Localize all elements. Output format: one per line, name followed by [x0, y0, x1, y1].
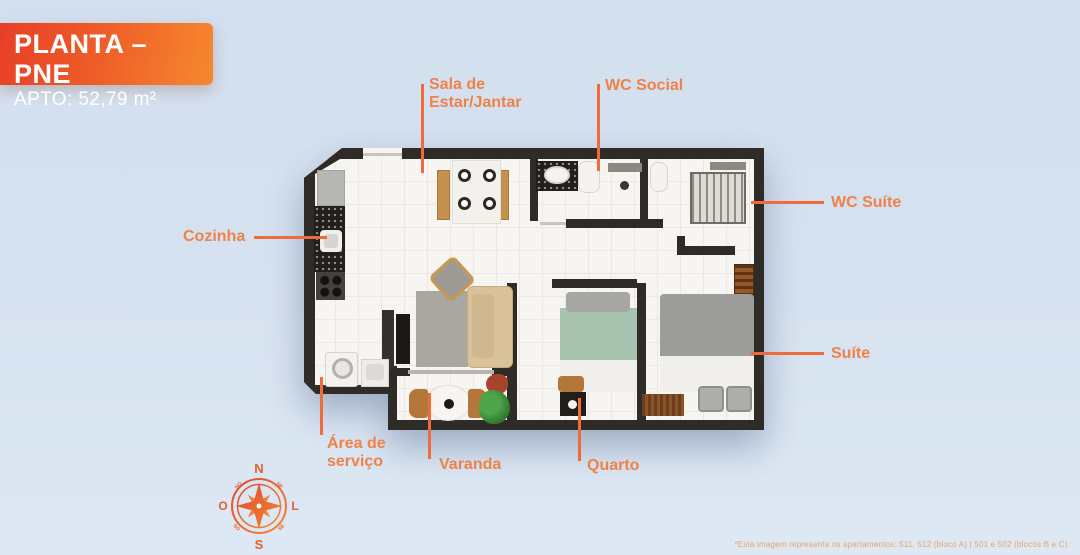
wcsuite-towel-rack — [690, 172, 746, 224]
label-wc-social: WC Social — [605, 77, 683, 95]
wcsocial-sink — [544, 166, 570, 184]
wall-right — [754, 148, 764, 430]
apartment-area: APTO: 52,79 m² — [14, 89, 203, 112]
footnote: *Esta imagem representa os apartamentos:… — [734, 540, 1070, 549]
compass-north-label: N — [254, 461, 263, 476]
wcsocial-shelf — [608, 163, 642, 172]
potted-plant — [479, 390, 510, 424]
compass-northeast-label-west: O — [218, 499, 227, 513]
leader-line-wc-suite — [751, 201, 824, 204]
leader-line-cozinha — [254, 236, 327, 239]
varanda-glass-door — [408, 370, 494, 374]
compass-northeast-label: NE — [275, 481, 285, 491]
title-block: PLANTA – PNE APTO: 52,79 m² — [0, 23, 213, 85]
leader-line-wc-social — [597, 84, 600, 171]
compass-south-label: S — [255, 537, 264, 552]
varanda-table-center — [444, 399, 454, 409]
compass-center-dot — [257, 504, 262, 509]
sofa-cushions — [472, 294, 494, 358]
dining-bench-left — [437, 170, 450, 220]
label-area-servico-line1: Área de — [327, 435, 386, 453]
suite-rug — [642, 394, 684, 416]
wcsuite-toilet — [650, 162, 668, 192]
label-area-servico: Área de serviço — [327, 435, 386, 472]
fridge — [317, 170, 345, 206]
label-quarto: Quarto — [587, 457, 639, 475]
laundry-tank-basin — [366, 364, 384, 380]
suite-cushion — [698, 386, 724, 412]
plate — [483, 169, 496, 182]
leader-line-area-servico — [320, 377, 323, 435]
quarto-pillow — [566, 292, 630, 312]
label-suite: Suíte — [831, 345, 870, 363]
varanda-chair-left — [409, 389, 428, 418]
entrance-door — [363, 153, 402, 156]
floor-plan — [302, 148, 764, 430]
tv-unit — [396, 314, 410, 364]
leader-line-quarto — [578, 398, 581, 461]
quarto-desk-detail — [568, 400, 577, 409]
quarto-chair — [558, 376, 584, 392]
plate — [483, 197, 496, 210]
floor-plan-page: PLANTA – PNE APTO: 52,79 m² — [0, 0, 1080, 555]
suite-bed-duvet — [660, 294, 754, 362]
leader-line-suite — [751, 352, 824, 355]
plate — [458, 197, 471, 210]
wcsocial-door — [540, 222, 566, 225]
label-sala-line2: Estar/Jantar — [429, 94, 522, 112]
label-area-servico-line2: serviço — [327, 453, 386, 471]
compass-northwest-label: NO — [234, 481, 244, 491]
washing-machine-lid — [332, 358, 353, 379]
plate — [458, 169, 471, 182]
suite-cushion — [726, 386, 752, 412]
leader-line-varanda — [428, 393, 431, 459]
label-cozinha: Cozinha — [183, 228, 245, 246]
stove — [316, 272, 345, 300]
wcsuite-shelf — [710, 162, 746, 170]
label-varanda: Varanda — [439, 456, 501, 474]
compass-east-label: L — [291, 499, 298, 513]
shower-head — [620, 181, 629, 190]
compass-svg: N S L O NE SE SO NO — [216, 456, 302, 552]
living-rug — [416, 291, 468, 367]
wall-hallway — [566, 219, 663, 228]
page-title: PLANTA – PNE — [14, 30, 203, 89]
label-wc-suite: WC Suíte — [831, 194, 901, 212]
label-sala-line1: Sala de — [429, 76, 522, 94]
wall-wcsuite-entry — [677, 246, 735, 255]
label-sala: Sala de Estar/Jantar — [429, 76, 522, 113]
leader-line-sala — [421, 84, 424, 173]
floor-plan-shape — [302, 148, 764, 430]
wall-bottom — [388, 420, 764, 430]
wall-quarto-headboard — [552, 279, 637, 288]
quarto-bed-duvet — [560, 308, 637, 366]
compass-rose-icon: N S L O NE SE SO NO — [216, 456, 302, 552]
